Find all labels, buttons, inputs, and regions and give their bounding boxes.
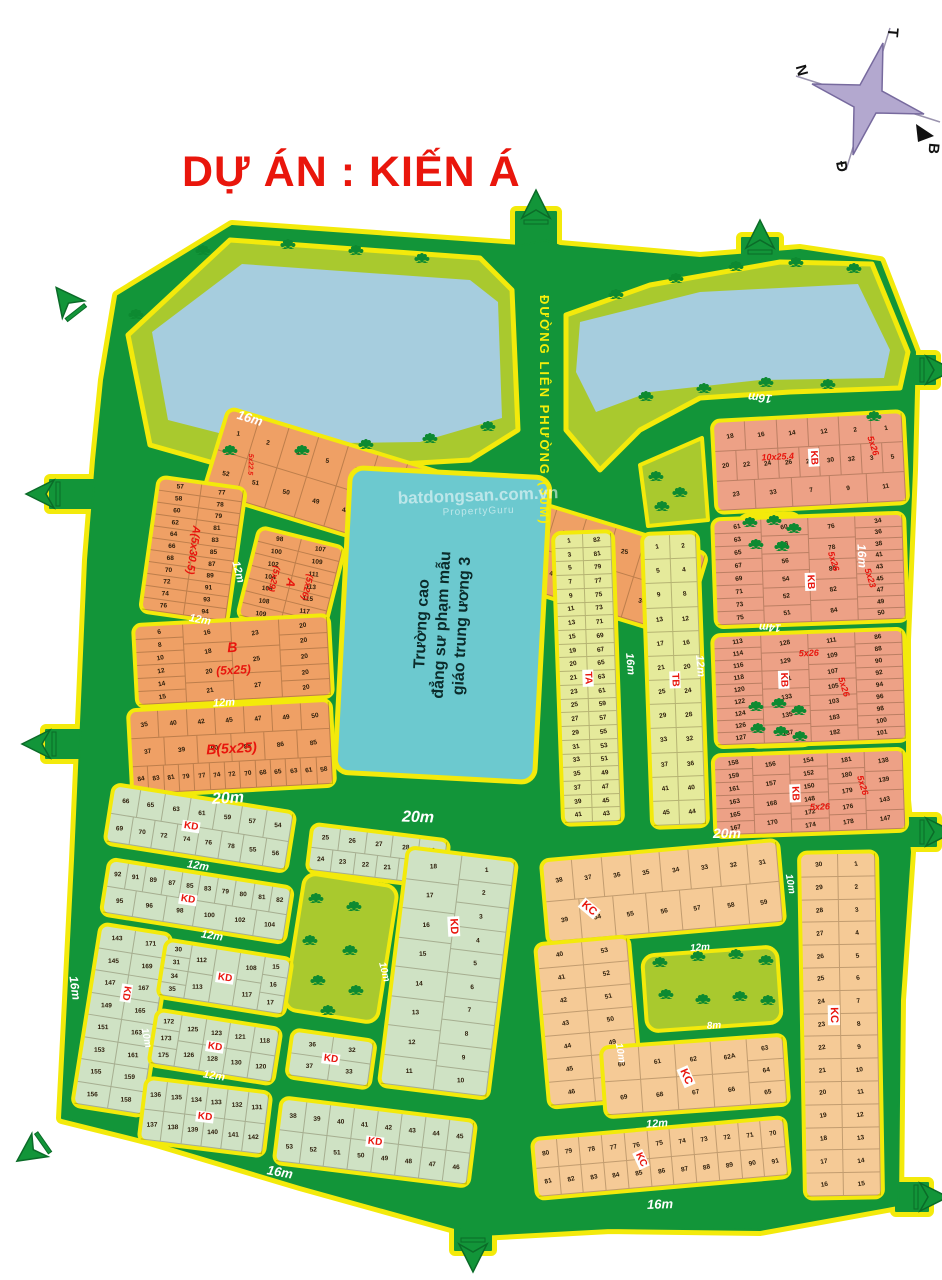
block-label: B <box>227 639 238 656</box>
lot-row: 1813 <box>806 1127 880 1151</box>
lot-cell: 156 <box>74 1081 111 1109</box>
lot-cell: 95 <box>103 887 137 917</box>
lot-column: 636465 <box>747 1037 788 1105</box>
block-a30: 5758606264666870727476777879818385878991… <box>138 474 249 625</box>
lot-cell: 5 <box>556 562 584 577</box>
lot-cell: 7 <box>792 476 831 507</box>
lot-cell: 35 <box>563 767 591 782</box>
lot-cell: 5 <box>840 945 877 968</box>
lot-cell: 96 <box>133 892 167 922</box>
compass-label-north: B <box>924 142 942 154</box>
lot-cell: 29 <box>650 704 677 729</box>
road-dimension-label: 12m <box>213 696 236 709</box>
lot-cell: 12 <box>672 607 699 632</box>
lot-cell: 1 <box>644 535 671 560</box>
lot-cell: 63 <box>285 758 302 786</box>
lot-cell: 118 <box>251 1027 279 1056</box>
lot-column: 605856545251 <box>761 518 812 624</box>
lot-cell: 86 <box>263 731 298 760</box>
lot-cell: 19 <box>559 644 587 659</box>
lot-cell: 181 <box>827 752 865 769</box>
lot-cell: 22 <box>804 1036 841 1059</box>
lot-column: 86889092949698100101 <box>855 631 906 741</box>
lot-cell: 77 <box>602 1133 627 1163</box>
road-dimension-label: 8m <box>706 1020 721 1032</box>
lot-cell: 35 <box>630 852 663 894</box>
tree-icon: ♣ <box>297 442 307 457</box>
lot-cell: 178 <box>830 814 868 831</box>
lot-cell: 63 <box>747 1037 784 1061</box>
lot-cell: 74 <box>670 1127 695 1157</box>
lot-cell: 39 <box>164 736 199 765</box>
site-plan-map: DỰ ÁN : KIẾN Á T N B Đ Trường cao đẳng s… <box>0 0 942 1280</box>
lot-row: 4143 <box>565 807 621 823</box>
block-ta: 1823815797779751173137115691967206521632… <box>551 529 625 827</box>
lot-row: 1312 <box>646 607 699 633</box>
lot-cell: 38 <box>543 860 576 902</box>
tree-icon: ♣ <box>763 992 773 1007</box>
lot-row: 98 <box>646 582 699 608</box>
lot-cell: 86 <box>650 1157 675 1187</box>
arrow-bar <box>748 250 772 254</box>
lot-cell: 19 <box>805 1105 842 1128</box>
tree-icon: ♣ <box>611 286 621 301</box>
lot-cell: 80 <box>534 1139 559 1169</box>
tree-icon: ♣ <box>225 442 235 457</box>
lot-cell: 26 <box>803 945 840 968</box>
lot-cell: 49 <box>591 766 619 781</box>
lot-cell: 21 <box>805 1059 842 1082</box>
lot-cell: 111 <box>808 632 856 649</box>
lot-row: 292 <box>801 876 875 900</box>
lot-cell: 4 <box>839 922 876 945</box>
lot-cell: 82 <box>810 579 858 601</box>
block-label: B(5x25) <box>205 739 256 758</box>
lot-column: 62A66 <box>711 1039 752 1107</box>
tree-icon: ♣ <box>699 380 709 395</box>
lot-cell: 84 <box>604 1161 629 1191</box>
lot-cell: 56 <box>646 891 683 934</box>
lot-cell: 47 <box>243 705 273 734</box>
lot-row: 3332 <box>651 727 704 753</box>
tree-icon: ♣ <box>417 250 427 265</box>
lot-cell: 183 <box>811 709 859 726</box>
lot-cell: 27 <box>802 922 839 945</box>
tree-icon: ♣ <box>671 270 681 285</box>
lot-cell: 25 <box>311 826 340 851</box>
lot-cell: 9 <box>557 589 585 604</box>
lot-cell: 65 <box>270 759 287 787</box>
lot-cell: 29 <box>801 877 838 900</box>
lot-cell: 102 <box>223 906 257 936</box>
tree-icon: ♣ <box>869 408 879 423</box>
compass-label-west: T <box>884 27 902 38</box>
lot-cell: 45 <box>592 794 620 809</box>
tree-icon: ♣ <box>731 946 741 961</box>
lot-cell: 44 <box>679 800 706 825</box>
road-dimension-label: 20m <box>713 825 741 841</box>
lot-cell: 120 <box>247 1053 275 1082</box>
lot-cell: 62A <box>711 1039 749 1074</box>
lot-cell: 152 <box>790 766 828 780</box>
arrow-bar <box>52 732 56 756</box>
lot-cell: 58 <box>713 885 750 928</box>
lot-cell: 37 <box>564 781 592 796</box>
lot-cell: 5 <box>645 559 672 584</box>
tree-icon: ♣ <box>313 972 323 987</box>
block-label: TA <box>582 670 594 687</box>
lot-cell: 45 <box>215 706 245 735</box>
lot-cell: 11 <box>557 603 585 618</box>
tree-icon: ♣ <box>849 260 859 275</box>
tree-icon: ♣ <box>351 242 361 257</box>
block-label: KB <box>808 448 820 467</box>
tree-icon: ♣ <box>751 536 761 551</box>
lot-row: 54 <box>645 558 698 584</box>
lot-cell: 42 <box>186 708 216 737</box>
lot-cell: 158 <box>715 756 753 770</box>
lot-cell: 85 <box>297 729 332 758</box>
tree-icon: ♣ <box>791 254 801 269</box>
lot-cell: 16 <box>807 1173 844 1196</box>
lot-cell: 54 <box>763 570 811 589</box>
block-label: (5x25) <box>216 662 251 678</box>
lot-column: 2020202020 <box>279 617 331 697</box>
lot-row: 247 <box>803 990 877 1014</box>
lot-cell: 20 <box>715 451 737 481</box>
lot-cell: 90 <box>740 1149 765 1179</box>
lot-cell: 100 <box>193 901 227 931</box>
lot-cell: 84 <box>811 600 859 622</box>
lot-cell: 56 <box>762 553 810 572</box>
lot-cell: 154 <box>790 753 828 767</box>
lot-row: 1714 <box>806 1150 880 1174</box>
arrow-bar <box>914 1185 918 1209</box>
lot-row: 274 <box>802 922 876 946</box>
lot-cell: 66 <box>713 1072 751 1107</box>
lot-cell: 41 <box>565 808 593 823</box>
lot-cell: 39 <box>564 795 592 810</box>
lot-cell: 57 <box>589 711 617 726</box>
lot-cell: 61 <box>301 757 318 785</box>
lot-cell: 47 <box>592 780 620 795</box>
lot-cell: 24 <box>309 848 334 873</box>
lot-cell: 107 <box>809 663 857 680</box>
lot-cell: 168 <box>754 794 792 815</box>
lot-cell: 71 <box>586 615 614 630</box>
lot-cell: 53 <box>590 739 618 754</box>
lot-row: 3736 <box>652 752 705 778</box>
lot-cell: 138 <box>865 751 903 772</box>
lot-cell: 37 <box>131 738 166 767</box>
lot-cell: 45 <box>446 1120 474 1154</box>
tree-icon: ♣ <box>794 702 804 717</box>
lot-cell: 72 <box>224 761 241 789</box>
lot-cell: 45 <box>653 801 680 826</box>
tree-icon: ♣ <box>361 436 371 451</box>
road-dimension-label: 16m <box>854 544 869 569</box>
lot-cell: 40 <box>678 776 705 801</box>
lot-cell: 17 <box>258 993 285 1015</box>
lot-cell: 56 <box>262 839 289 870</box>
lot-cell: 50 <box>858 607 905 620</box>
lot-cell: 36 <box>601 855 634 897</box>
lot-cell: 65 <box>750 1081 787 1105</box>
lot-cell: 67 <box>587 643 615 658</box>
lot-cell: 79 <box>557 1137 582 1167</box>
lot-cell: 32 <box>718 845 751 887</box>
lot-cell: 46 <box>443 1151 471 1185</box>
tree-icon: ♣ <box>661 986 671 1001</box>
lot-row: 1615 <box>807 1172 881 1196</box>
lot-cell: 46 <box>549 1079 596 1106</box>
tree-icon: ♣ <box>351 982 361 997</box>
lot-cell: 70 <box>761 1119 786 1149</box>
tree-icon: ♣ <box>651 468 661 483</box>
lot-column: 16182021 <box>183 622 235 702</box>
lot-cell: 32 <box>841 445 863 475</box>
tree-icon: ♣ <box>769 512 779 527</box>
lot-cell: 104 <box>253 910 287 940</box>
lot-cell: 159 <box>715 769 753 783</box>
block-label: KD <box>321 1052 341 1065</box>
lot-cell: 23 <box>560 685 588 700</box>
arrow-bar <box>65 304 86 322</box>
arrow-bar <box>524 220 548 224</box>
lot-cell: 176 <box>829 799 867 816</box>
tree-icon: ♣ <box>795 728 805 743</box>
road-dimension-label: 16m <box>747 390 772 406</box>
lot-cell: 58 <box>316 756 333 784</box>
tree-icon: ♣ <box>198 242 208 257</box>
lot-column: 6810121415 <box>135 625 187 705</box>
lot-row: 2011 <box>805 1081 879 1105</box>
block-label: 5x26 <box>799 648 819 659</box>
lot-cell: 22 <box>353 853 378 878</box>
lot-cell: 157 <box>753 774 791 795</box>
lot-cell: 91 <box>763 1147 788 1177</box>
lot-cell: 22 <box>736 450 758 480</box>
lot-cell: 13 <box>843 1127 880 1150</box>
lot-cell: 27 <box>365 833 394 858</box>
lot-row: 265 <box>803 945 877 969</box>
compass-star <box>812 43 924 155</box>
lot-cell: 142 <box>242 1122 266 1154</box>
tree-icon: ♣ <box>776 723 786 738</box>
block-label: KD <box>195 1110 215 1123</box>
lot-cell: 182 <box>811 725 859 742</box>
tree-icon: ♣ <box>761 952 771 967</box>
road-dimension-label: 20m <box>402 808 435 827</box>
lot-row: 238 <box>804 1013 878 1037</box>
lot-cell: 1 <box>838 853 875 876</box>
lot-row: 4140 <box>652 776 705 802</box>
lot-cell: 82 <box>269 887 291 916</box>
lot-row: 1716 <box>647 631 700 657</box>
lot-cell: 81 <box>163 764 180 792</box>
lot-column: 156157168170 <box>752 755 792 834</box>
block-label: 5x22.5 <box>246 454 254 476</box>
lot-cell: 77 <box>194 763 211 791</box>
tree-icon: ♣ <box>323 1002 333 1017</box>
lot-cell: 9 <box>841 1036 878 1059</box>
tree-icon: ♣ <box>675 484 685 499</box>
lot-cell: 51 <box>591 752 619 767</box>
block-tb: 1254981312171621202524292833323736414045… <box>640 530 710 830</box>
lot-cell: 75 <box>717 611 764 626</box>
lot-cell: 25 <box>561 699 589 714</box>
lot-cell: 156 <box>752 755 790 776</box>
tree-icon: ♣ <box>483 418 493 433</box>
tree-icon: ♣ <box>641 388 651 403</box>
lot-cell: 7 <box>556 575 584 590</box>
road-dimension-label: 16m <box>623 653 637 676</box>
lot-cell: 12 <box>808 416 841 447</box>
block-b1: 6810121415161820212325272020202020B(5x25… <box>131 613 335 709</box>
watermark: batdongsan.com.vn PropertyGuru <box>398 483 560 520</box>
lot-cell: 79 <box>178 764 195 792</box>
lot-row: 2110 <box>805 1059 879 1083</box>
block-label: KD <box>365 1135 385 1148</box>
lot-cell: 6 <box>840 967 877 990</box>
road-dimension-label: 14m <box>759 621 781 634</box>
lot-cell: 52 <box>764 587 812 606</box>
lot-cell: 11 <box>381 1054 437 1090</box>
tree-icon: ♣ <box>345 942 355 957</box>
lot-cell: 37 <box>572 857 605 899</box>
lot-row: 283 <box>802 899 876 923</box>
lot-cell: 43 <box>593 807 621 822</box>
tree-icon: ♣ <box>751 698 761 713</box>
lot-cell: 16 <box>745 420 778 451</box>
lot-cell: 101 <box>858 727 905 741</box>
road-dimension-label: 20m <box>212 789 245 809</box>
road-dimension-label: 12m <box>690 942 711 954</box>
lot-cell: 20 <box>805 1082 842 1105</box>
block-label: KB <box>778 671 790 690</box>
road-dimension-label: 16m <box>647 1196 674 1212</box>
arrow-bar <box>461 1238 485 1242</box>
lot-cell: 15 <box>138 689 187 704</box>
tree-icon: ♣ <box>311 890 321 905</box>
lot-cell: 37 <box>652 753 679 778</box>
lot-cell: 30 <box>801 854 838 877</box>
lot-cell: 32 <box>677 727 704 752</box>
lot-cell: 81 <box>583 547 611 562</box>
lot-cell: 175 <box>151 1046 178 1067</box>
lot-cell: 73 <box>585 602 613 617</box>
lot-cell: 55 <box>590 725 618 740</box>
lot-row: 229 <box>804 1036 878 1060</box>
lot-cell: 14 <box>776 418 809 449</box>
lot-cell: 31 <box>747 842 780 884</box>
lot-cell: 76 <box>808 516 856 538</box>
lot-cell: 174 <box>792 818 830 832</box>
page-title: DỰ ÁN : KIẾN Á <box>182 148 521 197</box>
lot-cell: 15 <box>558 630 586 645</box>
lot-cell: 27 <box>561 712 589 727</box>
lot-row: 2928 <box>650 703 703 729</box>
lot-cell: 13 <box>646 608 673 633</box>
college-name: Trường cao đẳng sư phạm mẫu giáo trung ư… <box>407 526 477 724</box>
lot-cell: 23 <box>717 480 756 511</box>
lot-cell: 77 <box>584 574 612 589</box>
block-kb2: 6163656769717375605856545251767880828434… <box>710 511 910 630</box>
lot-cell: 17 <box>806 1150 843 1173</box>
lot-cell: 13 <box>558 616 586 631</box>
lot-cell: 64 <box>748 1059 785 1083</box>
lot-cell: 3 <box>555 548 583 563</box>
lot-cell: 25 <box>803 968 840 991</box>
lot-cell: 18 <box>184 642 233 664</box>
lot-cell: 74 <box>209 762 226 790</box>
lot-cell: 139 <box>866 770 904 791</box>
lot-cell: 31 <box>562 740 590 755</box>
tree-icon: ♣ <box>283 236 293 251</box>
lot-cell: 82 <box>583 533 611 548</box>
lot-cell: 28 <box>676 703 703 728</box>
lot-cell: 143 <box>866 790 904 811</box>
block-b2: 3540424547495037399088868584838179777472… <box>125 698 336 799</box>
lot-cell: 75 <box>647 1129 672 1159</box>
lot-cell: 89 <box>718 1151 743 1181</box>
lot-cell: 59 <box>746 882 783 925</box>
lot-cell: 17 <box>647 632 674 657</box>
tree-icon: ♣ <box>774 695 784 710</box>
lot-cell: 88 <box>695 1153 720 1183</box>
compass-rose <box>796 28 940 170</box>
arrow-bar <box>56 482 60 506</box>
lot-cell: 9 <box>830 474 869 505</box>
lot-cell: 82 <box>559 1165 584 1195</box>
arrow-bar <box>920 358 924 382</box>
tree-icon: ♣ <box>655 954 665 969</box>
road-dimension-label: 16m <box>28 529 44 554</box>
tree-icon: ♣ <box>349 898 359 913</box>
block-kcSmall: 60696168626762A66636465KC <box>599 1033 792 1120</box>
road-dimension-label: 12m <box>646 1117 669 1131</box>
lot-cell: 34 <box>660 850 693 892</box>
lot-cell: 16 <box>673 631 700 656</box>
lot-cell: 11 <box>842 1081 879 1104</box>
block-label: KB <box>789 784 801 803</box>
lot-cell: 81 <box>536 1167 561 1197</box>
tree-icon: ♣ <box>745 514 755 529</box>
lot-cell: 5 <box>882 442 904 472</box>
tree-icon: ♣ <box>823 376 833 391</box>
lot-cell: 26 <box>338 829 367 854</box>
lot-cell: 28 <box>802 900 839 923</box>
lot-cell: 57 <box>680 888 717 931</box>
lot-cell: 69 <box>586 629 614 644</box>
lot-cell: 36 <box>678 752 705 777</box>
tree-icon: ♣ <box>753 720 763 735</box>
park-area <box>284 872 398 1023</box>
lot-cell: 2 <box>670 534 697 559</box>
arrow-bar <box>920 820 924 844</box>
lot-cell: 3 <box>839 899 876 922</box>
lot-cell: 15 <box>844 1172 881 1195</box>
lot-cell: 103 <box>810 694 858 711</box>
lot-cell: 35 <box>129 711 159 740</box>
tree-icon: ♣ <box>131 306 141 321</box>
lot-cell: 131 <box>245 1092 269 1124</box>
lot-cell: 83 <box>582 1163 607 1193</box>
lot-cell: 55 <box>613 893 650 936</box>
lot-row: 4544 <box>653 800 706 826</box>
lot-cell: 33 <box>689 847 722 889</box>
lot-cell: 20 <box>282 679 331 697</box>
